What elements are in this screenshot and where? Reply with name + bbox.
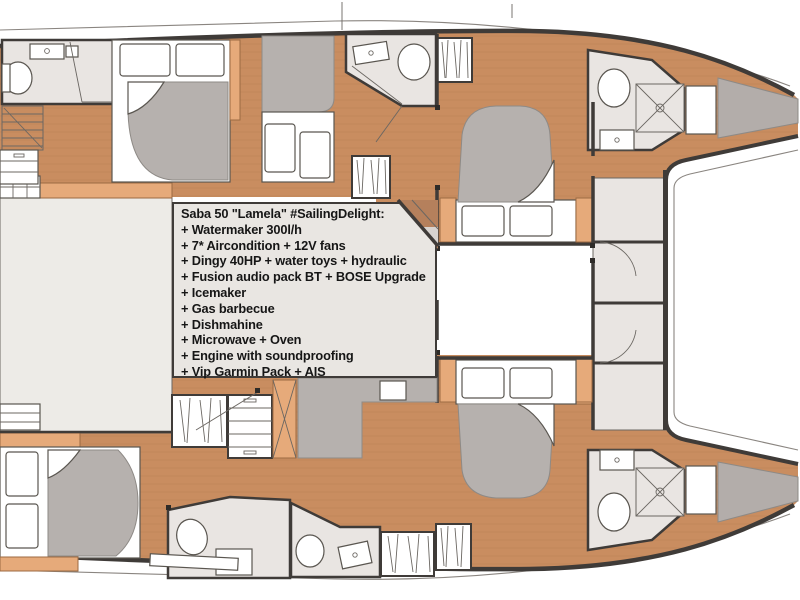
pillow bbox=[6, 452, 38, 496]
pillow bbox=[510, 206, 552, 236]
pillow bbox=[120, 44, 170, 76]
mattress bbox=[262, 36, 334, 112]
feature-item: + Fusion audio pack BT + BOSE Upgrade bbox=[181, 269, 435, 285]
nightstand bbox=[440, 358, 456, 402]
aft-cabin-bed-port bbox=[112, 40, 230, 182]
nightstand bbox=[576, 358, 592, 402]
feature-item: + Gas barbecue bbox=[181, 301, 435, 317]
feature-item: + Microwave + Oven bbox=[181, 332, 435, 348]
salon-floor bbox=[0, 198, 172, 433]
sink bbox=[600, 130, 634, 150]
pillow bbox=[462, 206, 504, 236]
wardrobe bbox=[381, 532, 434, 576]
salon-seat-back-bottom bbox=[0, 433, 80, 447]
mid-cabin-bed-port bbox=[262, 36, 334, 182]
hinge-dot bbox=[590, 243, 595, 248]
pillow bbox=[300, 132, 330, 178]
toilet bbox=[398, 44, 430, 80]
closet-port bbox=[437, 38, 472, 82]
nightstand bbox=[440, 198, 456, 242]
pillow bbox=[265, 124, 295, 172]
feature-item: + Engine with soundproofing bbox=[181, 348, 435, 364]
drawer-chest-port bbox=[0, 150, 38, 184]
drawers bbox=[0, 150, 38, 184]
cabinet bbox=[0, 404, 40, 430]
trampoline bbox=[666, 136, 798, 464]
bow-locker-port bbox=[686, 86, 716, 134]
drawer-stack bbox=[228, 395, 272, 458]
cabinet-strip bbox=[576, 198, 593, 242]
counter-sink bbox=[380, 381, 406, 400]
sink bbox=[600, 450, 634, 470]
trampoline-area bbox=[666, 136, 798, 464]
wardrobes-starboard bbox=[381, 524, 471, 576]
pillow bbox=[510, 368, 552, 398]
headboard-trim-port bbox=[230, 40, 240, 120]
toilet bbox=[598, 493, 630, 531]
corner-wall-overlay bbox=[396, 199, 440, 253]
footboard-trim bbox=[0, 557, 78, 571]
bow-locker-starboard bbox=[686, 466, 716, 514]
hinge-dot bbox=[435, 185, 440, 190]
sink bbox=[30, 44, 64, 59]
hinge-dot bbox=[166, 505, 171, 510]
floorplan-stage: Saba 50 "Lamela" #SailingDelight: + Wate… bbox=[0, 0, 800, 600]
feature-item: + Icemaker bbox=[181, 285, 435, 301]
pillow bbox=[462, 368, 504, 398]
toilet-tank bbox=[2, 64, 10, 92]
toilet bbox=[598, 69, 630, 107]
wardrobe-port-2 bbox=[352, 156, 390, 198]
pillow bbox=[176, 44, 224, 76]
stairs-port bbox=[2, 106, 43, 150]
hinge-dot bbox=[590, 258, 595, 263]
feature-item: + Vip Garmin Pack + AIS bbox=[181, 364, 435, 380]
hinge-dot bbox=[435, 105, 440, 110]
feature-item: + Dingy 40HP + water toys + hydraulic bbox=[181, 253, 435, 269]
pillow bbox=[6, 504, 38, 548]
feature-item: + Dishmahine bbox=[181, 317, 435, 333]
hinge-dot bbox=[255, 388, 260, 393]
toilet bbox=[296, 535, 324, 567]
